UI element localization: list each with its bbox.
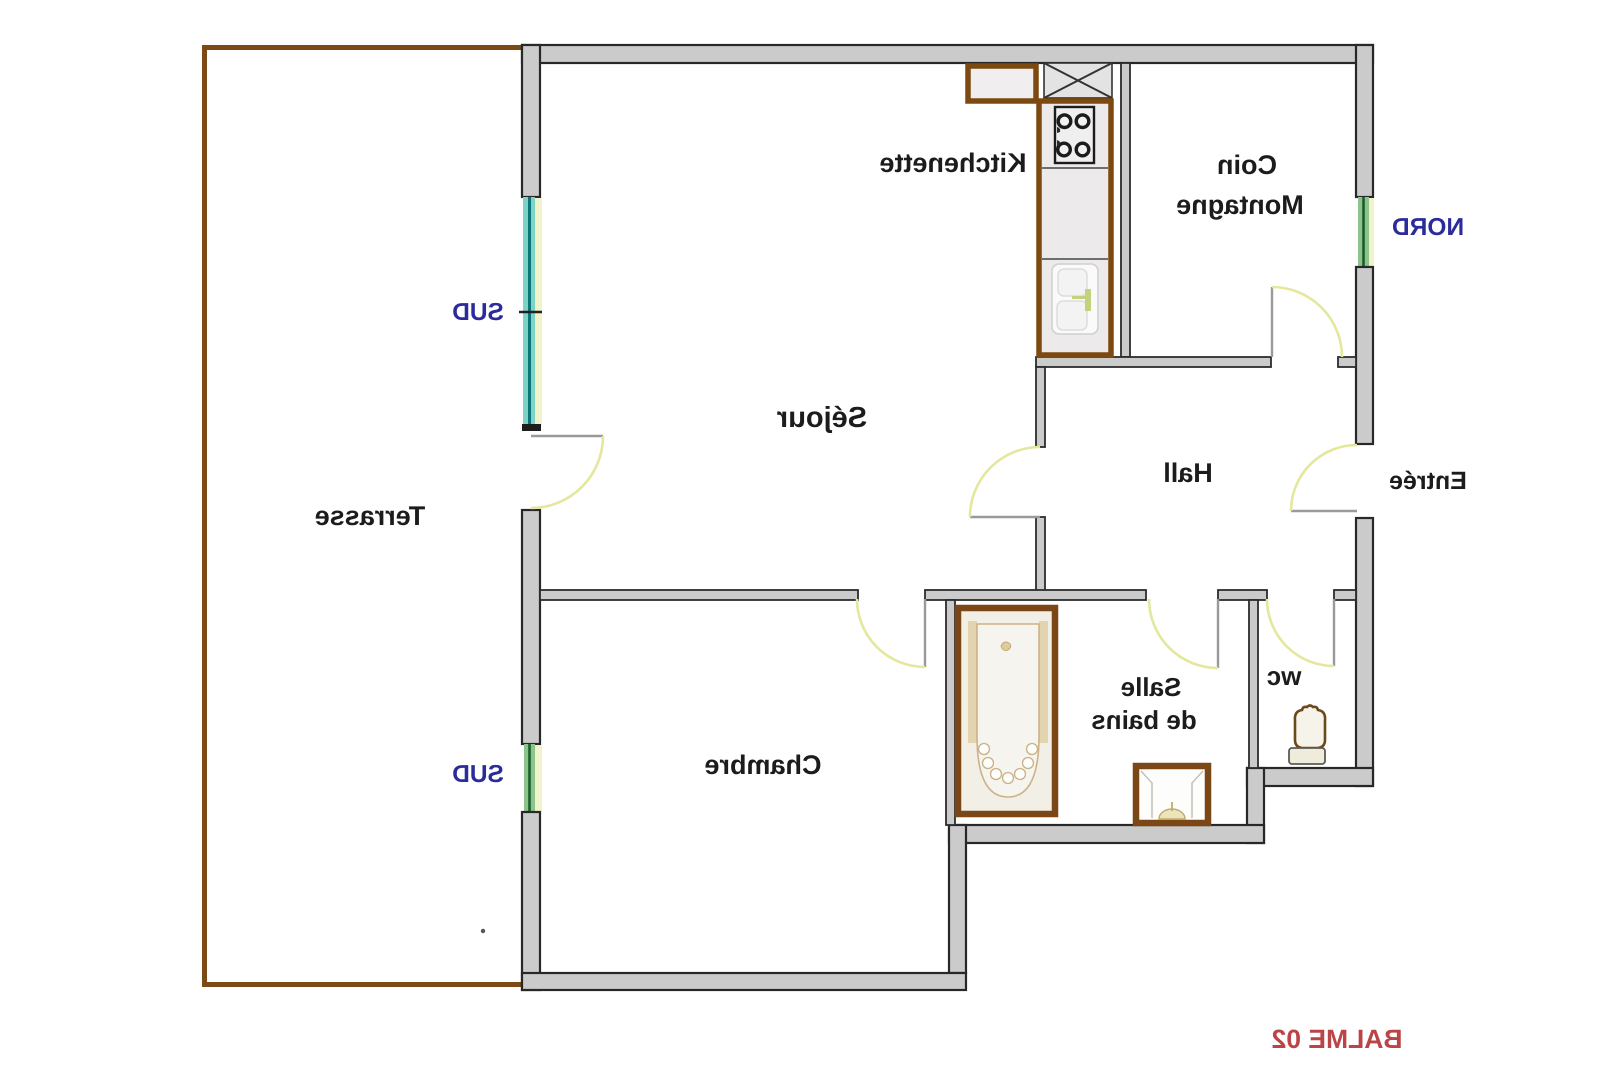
svg-text:NORD: NORD (1392, 214, 1464, 241)
svg-text:Coin: Coin (1217, 150, 1277, 180)
svg-text:Salle: Salle (1121, 672, 1182, 702)
svg-text:Terrasse: Terrasse (315, 501, 426, 531)
svg-text:Séjour: Séjour (777, 402, 867, 434)
svg-text:BALME 02: BALME 02 (1271, 1024, 1402, 1054)
svg-text:Kitchenette: Kitchenette (879, 148, 1026, 178)
svg-text:de bains: de bains (1091, 705, 1196, 735)
svg-text:wc: wc (1267, 661, 1303, 691)
svg-text:Entrée: Entrée (1389, 467, 1467, 495)
svg-text:Chambre: Chambre (704, 750, 821, 780)
svg-text:Montagne: Montagne (1176, 190, 1304, 220)
svg-text:SUD: SUD (452, 299, 504, 326)
svg-text:SUD: SUD (452, 761, 504, 788)
svg-text:Hall: Hall (1163, 458, 1213, 488)
